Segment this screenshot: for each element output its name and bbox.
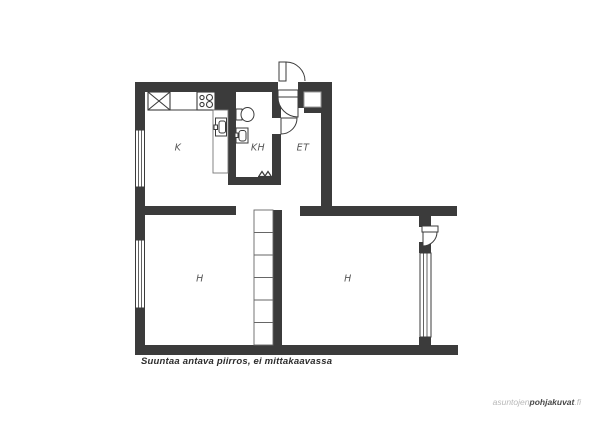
floor-plan-page: K KH ET H H Suuntaa antava piirros, ei m… xyxy=(0,0,604,427)
window-kitchen xyxy=(136,130,145,187)
wall-closet-right xyxy=(273,210,282,345)
watermark: asuntojenpohjakuvat.fi xyxy=(493,397,581,407)
window-room-left xyxy=(136,240,145,308)
windows xyxy=(136,130,432,337)
washbasin-icon xyxy=(235,128,248,143)
kitchen-sink-icon xyxy=(214,118,227,136)
wall-divider-right xyxy=(300,206,457,216)
wall-top-left xyxy=(135,82,278,92)
floor-drain-icon xyxy=(258,172,272,177)
disclaimer-caption: Suuntaa antava piirros, ei mittakaavassa xyxy=(141,356,332,367)
watermark-brand: pohjakuvat xyxy=(530,397,575,407)
balcony-door-icon xyxy=(422,226,438,246)
wall-right-lower xyxy=(419,337,431,345)
watermark-prefix: asuntojen xyxy=(493,397,530,407)
wall-entry-bench xyxy=(304,107,321,113)
entry-niche xyxy=(304,92,321,107)
bathroom-door-icon xyxy=(281,118,297,134)
wall-bath-right-lower xyxy=(272,134,281,177)
wall-right-stub xyxy=(419,216,431,227)
closet-shelves xyxy=(254,210,273,345)
entry-outer-door-icon xyxy=(279,62,305,81)
stove-icon xyxy=(197,92,215,110)
room-label-entry: ET xyxy=(297,143,310,154)
watermark-tld: .fi xyxy=(574,397,581,407)
room-label-kitchen: K xyxy=(175,143,182,154)
wall-entry-right xyxy=(321,82,332,216)
cabinet-icon xyxy=(148,92,170,110)
wall-bottom xyxy=(135,345,458,355)
room-label-room-right: H xyxy=(344,274,352,285)
room-label-bathroom: KH xyxy=(251,143,265,154)
wall-left-upper xyxy=(135,82,145,130)
window-room-right xyxy=(420,253,431,337)
wall-bath-bottom xyxy=(228,177,281,185)
toilet-icon xyxy=(236,108,254,122)
room-label-room-left: H xyxy=(196,274,204,285)
wall-divider-left xyxy=(143,206,236,215)
